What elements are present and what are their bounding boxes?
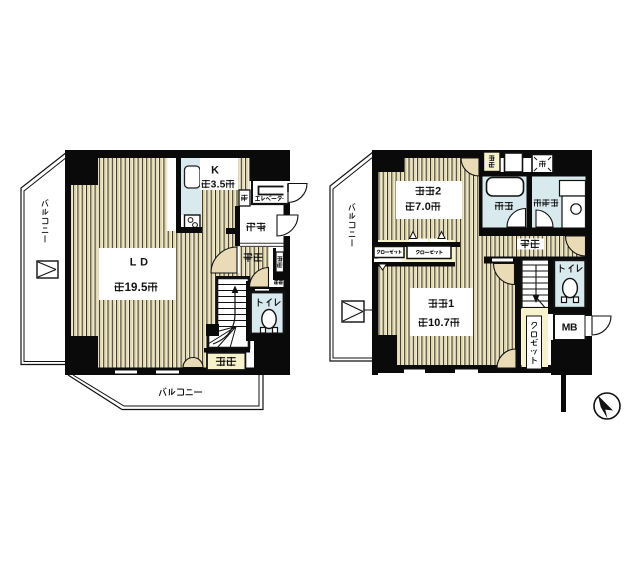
- svg-text:0: 0: [434, 317, 440, 329]
- svg-text:D: D: [140, 257, 148, 269]
- svg-text:1: 1: [448, 298, 454, 310]
- svg-text:7: 7: [444, 317, 450, 329]
- svg-text:9: 9: [131, 282, 137, 294]
- svg-text:7: 7: [415, 201, 421, 213]
- svg-text:B: B: [570, 322, 577, 333]
- svg-text:5: 5: [141, 282, 148, 294]
- svg-text:0: 0: [425, 201, 431, 213]
- svg-text:K: K: [211, 165, 219, 177]
- svg-text:5: 5: [220, 179, 226, 190]
- svg-text:L: L: [130, 257, 137, 269]
- svg-text:2: 2: [435, 186, 441, 198]
